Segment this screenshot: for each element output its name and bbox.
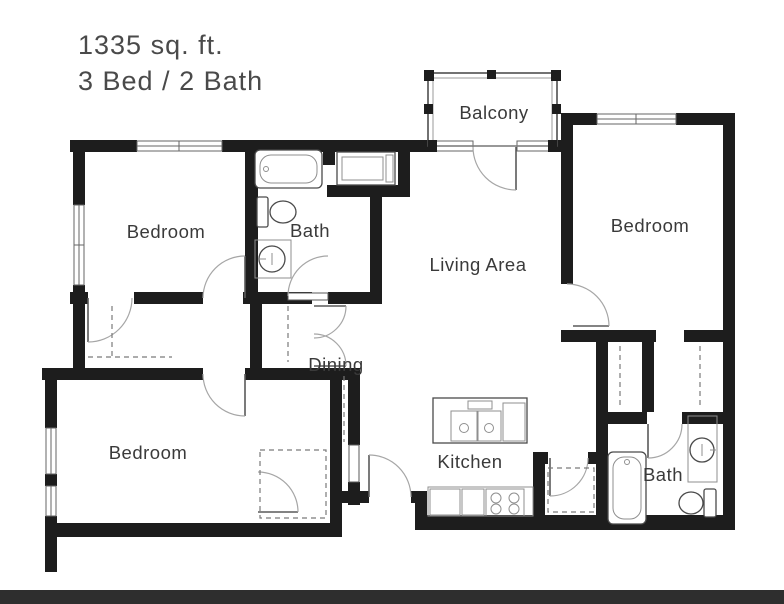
vanity-sink-icon xyxy=(688,416,717,482)
floor-plan-drawing: 1335 sq. ft. 3 Bed / 2 Bath xyxy=(0,0,784,604)
entry-closet-door xyxy=(349,445,359,482)
label-living-area: Living Area xyxy=(429,254,526,275)
bedroom2-door xyxy=(567,284,609,326)
bedroom1-door xyxy=(203,256,245,298)
label-balcony: Balcony xyxy=(459,102,529,123)
label-bedroom-bottom-left: Bedroom xyxy=(109,442,188,463)
kitchen-hall-door xyxy=(550,458,588,496)
closet1-door xyxy=(88,298,132,342)
floor-plan-page: 1335 sq. ft. 3 Bed / 2 Bath xyxy=(0,0,784,604)
plan-config-text: 3 Bed / 2 Bath xyxy=(78,66,263,96)
entry-door xyxy=(369,455,411,497)
plan-area-text: 1335 sq. ft. xyxy=(78,30,224,60)
balcony-door xyxy=(473,147,516,190)
bottom-edge-bar xyxy=(0,590,784,604)
label-bedroom-right: Bedroom xyxy=(611,215,690,236)
window-bedroom3-left-lower xyxy=(46,486,56,516)
bedroom3-door xyxy=(203,374,245,416)
plan-title: 1335 sq. ft. 3 Bed / 2 Bath xyxy=(78,30,263,96)
bathtub-icon xyxy=(255,150,322,188)
bedroom3-closet-door xyxy=(258,472,298,512)
label-bedroom-top-left: Bedroom xyxy=(127,221,206,242)
window-bedroom1-left xyxy=(74,205,84,285)
bath1-door xyxy=(288,256,328,300)
bathtub2-icon xyxy=(608,452,646,524)
bath2-door xyxy=(648,424,682,458)
label-kitchen: Kitchen xyxy=(437,451,502,472)
label-bath-top: Bath xyxy=(290,220,330,241)
pedestal-sink-icon xyxy=(255,240,291,278)
window-bedroom2-top xyxy=(597,114,676,124)
window-bedroom3-left-upper xyxy=(46,428,56,474)
kitchen-island-icon xyxy=(433,398,527,443)
shower-stall-icon xyxy=(337,152,395,185)
label-dining: Dining xyxy=(308,354,363,375)
toilet2-icon xyxy=(679,489,716,517)
window-bedroom1-top xyxy=(137,141,222,151)
label-bath-bottom-right: Bath xyxy=(643,464,683,485)
range-cooktop-icon xyxy=(486,489,524,516)
